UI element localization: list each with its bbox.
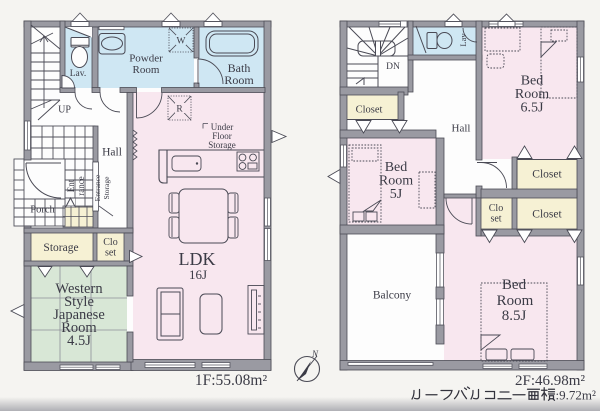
svg-text:Lav: Lav	[458, 33, 468, 47]
svg-text:Entrance: Entrance	[93, 174, 102, 201]
svg-text:Storage: Storage	[208, 140, 236, 150]
svg-text:UP: UP	[58, 105, 71, 116]
svg-text:rance: rance	[76, 176, 86, 195]
svg-text:6.5J: 6.5J	[521, 101, 545, 116]
svg-text:Powder: Powder	[129, 53, 163, 65]
svg-text:Hall: Hall	[102, 147, 122, 159]
svg-text:LDK: LDK	[179, 249, 216, 269]
svg-text:Room: Room	[224, 73, 254, 87]
svg-text:Storage: Storage	[43, 242, 78, 254]
svg-text:Porch: Porch	[30, 205, 55, 216]
svg-text::9.72m²: :9.72m²	[556, 388, 596, 403]
svg-text:Closet: Closet	[532, 169, 562, 181]
svg-text:8.5J: 8.5J	[502, 308, 527, 324]
svg-text:Closet: Closet	[532, 209, 562, 221]
svg-text:set: set	[490, 214, 501, 225]
svg-text:R: R	[176, 105, 183, 115]
svg-text:DN: DN	[386, 62, 400, 72]
svg-text:Bed: Bed	[502, 277, 527, 293]
svg-text:Hall: Hall	[452, 123, 471, 135]
svg-text:16J: 16J	[189, 267, 207, 282]
svg-text:W: W	[177, 37, 186, 47]
svg-text:4.5J: 4.5J	[67, 333, 91, 349]
svg-text:Ent: Ent	[66, 179, 76, 192]
svg-text:Room: Room	[497, 293, 534, 309]
svg-text:set: set	[105, 248, 116, 259]
svg-text:5J: 5J	[390, 187, 403, 202]
svg-text:Clo: Clo	[103, 237, 117, 248]
svg-text:1F:55.08m²: 1F:55.08m²	[195, 372, 268, 389]
svg-text:Clo: Clo	[489, 203, 503, 214]
svg-text:Closet: Closet	[356, 105, 383, 116]
svg-text:N: N	[311, 349, 319, 359]
svg-text:Storage: Storage	[102, 176, 111, 200]
svg-text:Room: Room	[133, 64, 160, 76]
svg-text:Lav.: Lav.	[70, 69, 87, 79]
svg-text:Balcony: Balcony	[373, 290, 412, 302]
